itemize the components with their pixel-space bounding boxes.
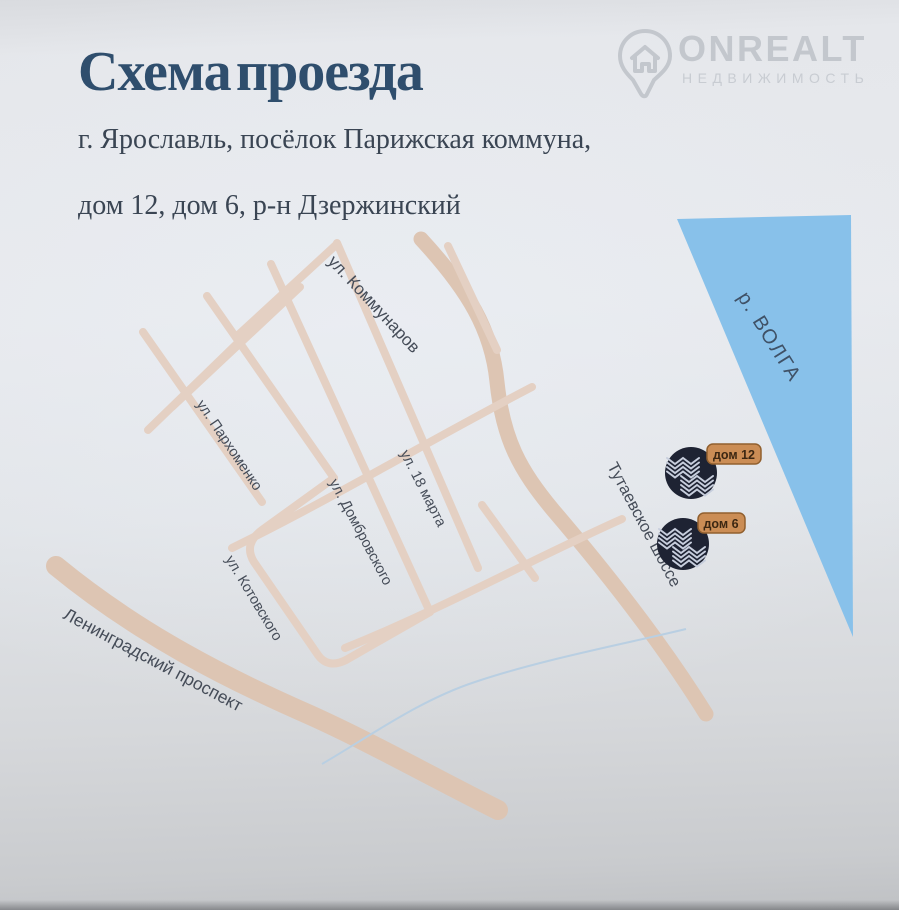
street-label-leningradsky: Ленинградский проспект <box>60 604 246 716</box>
subtitle-line-2: дом 12, дом 6, р-н Дзержинский <box>78 190 461 221</box>
badge-dom-6-label: дом 6 <box>703 517 738 531</box>
page-title: Схема проезда <box>78 40 423 104</box>
street-label-parkhomenko: ул. Пархоменко <box>193 397 265 494</box>
subtitle-line-1: г. Ярославль, посёлок Парижская коммуна, <box>78 124 591 155</box>
road-tutaevskoe <box>421 239 706 714</box>
onrealt-logo: ONREALT НЕДВИЖИМОСТЬ <box>612 26 892 104</box>
volga-river-area <box>677 215 853 637</box>
badge-dom-12-label: дом 12 <box>713 448 755 462</box>
logo-brand-text: ONREALT <box>678 28 867 70</box>
road-leningradsky <box>56 566 498 810</box>
street-label-dombrovskogo: ул. Домбровского <box>325 476 395 588</box>
map-markers: дом 12 дом 6 <box>657 444 761 570</box>
street <box>236 244 337 337</box>
map-pin-house-icon <box>616 28 674 100</box>
page-subtitle: г. Ярославль, посёлок Парижская коммуна,… <box>78 124 591 222</box>
route-scheme-page: { "page": { "title": "Схема проезда", "s… <box>0 0 899 910</box>
street <box>271 264 430 612</box>
street <box>448 246 497 350</box>
logo-tagline-text: НЕДВИЖИМОСТЬ <box>682 70 869 86</box>
street-label-kommunarov: ул. Коммунаров <box>324 252 424 357</box>
